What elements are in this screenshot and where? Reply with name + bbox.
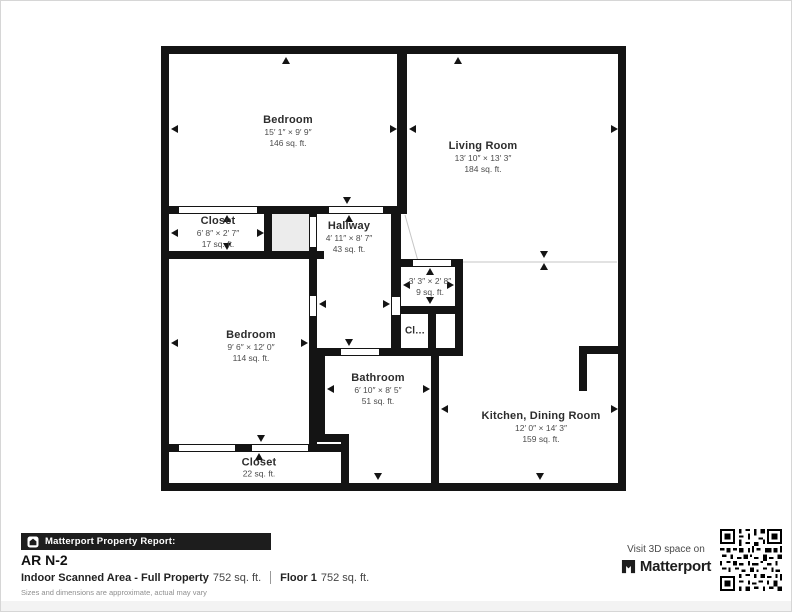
room-name: Bedroom [263,114,313,126]
dimension-arrow [383,300,390,308]
door-opening [179,206,257,214]
dimension-arrow [282,57,290,64]
qr-code [720,529,782,591]
dimension-arrow [374,473,382,480]
door-opening [309,296,317,316]
room-area: 43 sq. ft. [326,245,373,256]
room-label-closet-small: 3′ 3″ × 2′ 8″ 9 sq. ft. [409,275,452,299]
room-area: 184 sq. ft. [449,165,518,176]
room-area: 146 sq. ft. [263,139,313,150]
room-name: Hallway [326,220,373,232]
door-opening [252,444,308,452]
dimension-arrow [171,125,178,133]
matterport-house-icon [27,536,39,548]
property-name: AR N-2 [21,552,68,568]
visit-3d-space-block: Visit 3D space on Matterport [609,544,723,575]
room-label-closet-top: Closet 6′ 8″ × 2′ 7″ 17 sq. ft. [197,215,240,251]
stats-divider [270,571,271,584]
room-label-hallway: Hallway 4′ 11″ × 8′ 7″ 43 sq. ft. [326,220,373,256]
disclaimer-text: Sizes and dimensions are approximate, ac… [21,588,207,597]
wall [431,356,439,491]
dimension-arrow [426,268,434,275]
room-label-closet-bottom: Closet 22 sq. ft. [242,456,277,479]
room-area: 9 sq. ft. [409,288,452,299]
room-name: Bathroom [351,372,405,384]
dimension-arrow [441,405,448,413]
dimension-arrow [319,300,326,308]
room-label-bedroom-1: Bedroom 15′ 1″ × 9′ 9″ 146 sq. ft. [263,114,313,150]
room-name: Living Room [449,140,518,152]
wall [618,46,626,491]
door-opening [391,297,401,315]
room-dimensions: 6′ 8″ × 2′ 7″ [197,228,240,239]
room-dimensions: 12′ 0″ × 14′ 3″ [482,423,601,434]
dimension-arrow [423,385,430,393]
wall [161,46,626,54]
wall [317,356,325,442]
dimension-arrow [327,385,334,393]
room-label-bathroom: Bathroom 6′ 10″ × 8′ 5″ 51 sq. ft. [351,372,405,408]
matterport-wordmark: Matterport [640,558,711,575]
door-opening [341,348,379,356]
scanned-area-label: Indoor Scanned Area - Full Property [21,572,209,584]
dimension-arrow [171,229,178,237]
floor-label: Floor 1 [280,572,317,584]
room-name: Kitchen, Dining Room [482,410,601,422]
dimension-arrow [301,339,308,347]
scanned-area-value: 752 sq. ft. [213,572,261,584]
dimension-arrow [611,125,618,133]
visit-3d-space-text: Visit 3D space on [609,544,723,555]
dimension-arrow [540,251,548,258]
page-bottom-margin [1,601,792,612]
dimension-arrow [171,339,178,347]
dimension-arrow [454,57,462,64]
dimension-arrow [536,473,544,480]
area-stats: Indoor Scanned Area - Full Property 752 … [21,571,369,584]
room-name: Closet [242,456,277,468]
room-dimensions: 6′ 10″ × 8′ 5″ [351,385,405,396]
room-label-kitchen-dining: Kitchen, Dining Room 12′ 0″ × 14′ 3″ 159… [482,410,601,446]
floor-value: 752 sq. ft. [321,572,369,584]
room-area: 114 sq. ft. [226,354,276,365]
report-bar-title: Matterport Property Report: [45,536,176,547]
wall [309,348,463,356]
room-dimensions: 13′ 10″ × 13′ 3″ [449,153,518,164]
wall [161,483,626,491]
room-dimensions: 9′ 6″ × 12′ 0″ [226,342,276,353]
dimension-arrow [343,197,351,204]
room-area: 51 sq. ft. [351,397,405,408]
door-opening [179,444,235,452]
room-area: 22 sq. ft. [242,468,277,479]
room-label-closet-truncated: Cl… [405,326,425,337]
dimension-arrow [345,339,353,346]
room-name: Bedroom [226,329,276,341]
property-report-page: Bedroom 15′ 1″ × 9′ 9″ 146 sq. ft. Livin… [0,0,792,612]
matterport-logo-icon [621,559,636,574]
dimension-arrow [540,263,548,270]
room-area: 159 sq. ft. [482,435,601,446]
room-area: 17 sq. ft. [197,240,240,251]
room-name: Closet [197,215,240,227]
dimension-arrow [257,435,265,442]
dimension-arrow [390,125,397,133]
wall [161,251,324,259]
room-label-living-room: Living Room 13′ 10″ × 13′ 3″ 184 sq. ft. [449,140,518,176]
door-opening [413,259,451,267]
door-opening [329,206,383,214]
dimension-arrow [409,125,416,133]
wall [391,206,401,356]
room-dimensions: 3′ 3″ × 2′ 8″ [409,276,452,287]
room-dimensions: 4′ 11″ × 8′ 7″ [326,233,373,244]
room-label-bedroom-2: Bedroom 9′ 6″ × 12′ 0″ 114 sq. ft. [226,329,276,365]
wall [399,306,463,314]
wall [161,46,169,491]
wall [397,46,407,213]
room-dimensions: 15′ 1″ × 9′ 9″ [263,127,313,138]
dimension-arrow [257,229,264,237]
report-bar: Matterport Property Report: [21,533,271,550]
unlabeled-room [272,214,309,251]
dimension-arrow [611,405,618,413]
door-opening [309,217,317,247]
wall [579,346,587,391]
wall [428,314,436,356]
wall [341,434,349,491]
